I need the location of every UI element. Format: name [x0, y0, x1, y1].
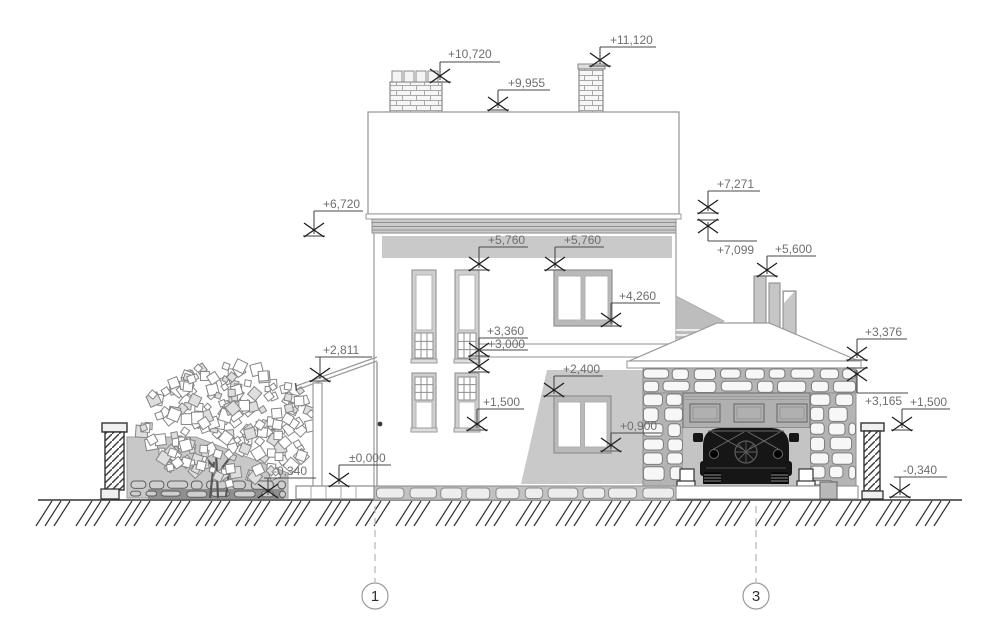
level-marker: +11,120 [589, 33, 656, 67]
stone [496, 488, 519, 499]
stone [441, 488, 462, 499]
stone [548, 488, 578, 498]
level-label: +10,720 [448, 47, 492, 61]
chimney-cap [416, 71, 426, 82]
leaf [213, 449, 223, 459]
hatch-line [934, 501, 950, 526]
hatch-line [436, 501, 452, 526]
window-pane [558, 276, 581, 320]
stone [278, 481, 286, 489]
level-label: +3,360 [487, 324, 524, 338]
post-cap [102, 423, 127, 432]
hatch-line [294, 501, 310, 526]
leaf [181, 414, 192, 425]
hatch-line [645, 501, 661, 526]
second-floor-right-window [554, 270, 612, 326]
stone [811, 381, 828, 391]
hatch-line [116, 501, 132, 526]
stone [843, 369, 856, 379]
stone [672, 369, 688, 379]
window-pane [585, 276, 608, 320]
hatch-line [605, 501, 621, 526]
post-base [101, 489, 119, 499]
car-headlight [774, 450, 783, 459]
stone [232, 481, 245, 489]
stone [644, 439, 664, 450]
leaf [225, 464, 235, 474]
stone [811, 407, 824, 420]
hatch-line [805, 501, 821, 526]
stone [665, 408, 683, 421]
garage-jamb-left [677, 469, 695, 486]
leaf [179, 439, 192, 452]
leaf [248, 387, 262, 401]
hatch-line [565, 501, 581, 526]
stone [820, 369, 838, 379]
level-label: +3,000 [488, 337, 525, 351]
stone [466, 488, 490, 499]
tall-window-upper [454, 270, 480, 363]
stone [721, 381, 752, 391]
tall-window-upper [411, 270, 437, 363]
window-lattice [415, 333, 433, 358]
hatch-line [325, 501, 341, 526]
hatch-line [134, 501, 150, 526]
stone-pier-base [820, 482, 837, 499]
hatch-line [76, 501, 92, 526]
level-label: +7,271 [717, 177, 754, 191]
hatch-line [276, 501, 292, 526]
stone [663, 381, 689, 391]
hatch-line [525, 501, 541, 526]
stone [694, 369, 715, 380]
level-label: +4,260 [619, 289, 656, 303]
stone [234, 491, 255, 497]
stone [410, 488, 436, 498]
window-sill [411, 428, 437, 432]
hatch-line [876, 501, 892, 526]
right-fence-post [861, 423, 884, 499]
hatch-line [765, 501, 781, 526]
hatch-line [94, 501, 110, 526]
hatch-line [854, 501, 870, 526]
hatch-line [205, 501, 221, 526]
stone [833, 381, 855, 392]
level-label: +2,400 [563, 362, 600, 376]
hatch-line [885, 501, 901, 526]
leaf [222, 362, 230, 370]
level-marker: +6,720 [303, 197, 363, 237]
hatch-line [156, 501, 172, 526]
hatch-line [716, 501, 732, 526]
hatch-line [516, 501, 532, 526]
leaf [209, 466, 216, 473]
hatch-line [85, 501, 101, 526]
leaf [196, 461, 206, 471]
porch-roof [296, 357, 377, 390]
leaf [255, 436, 265, 446]
stone [778, 381, 806, 392]
level-marker: +7,099 [697, 219, 757, 257]
leaf [284, 382, 292, 390]
hatch-line [454, 501, 470, 526]
stone [745, 369, 764, 379]
post-base [862, 491, 883, 499]
stone [131, 491, 141, 496]
stone [644, 453, 663, 464]
hatch-line [796, 501, 812, 526]
hatch-line [334, 501, 350, 526]
chimney-body [579, 69, 603, 115]
car-mirror [693, 433, 703, 442]
window-pane [416, 402, 432, 428]
hatch-line [45, 501, 61, 526]
level-marker: -0,340 [889, 463, 947, 498]
stone [849, 423, 856, 435]
hatch-line [374, 501, 390, 526]
car-grille-spokes [735, 441, 757, 463]
hatch-line [365, 501, 381, 526]
level-label: +11,120 [610, 33, 653, 47]
level-label: +0,900 [620, 419, 657, 433]
hatch-line [614, 501, 630, 526]
hatch-line [534, 501, 550, 526]
hatch-line [725, 501, 741, 526]
hatch-line [54, 501, 70, 526]
porch-post [313, 383, 322, 487]
stone [811, 394, 830, 405]
stone [644, 467, 665, 481]
axis-number-3: 3 [752, 588, 760, 605]
stone [829, 466, 842, 478]
hatch-line [196, 501, 212, 526]
level-label: +5,600 [775, 242, 812, 256]
car-mirror [789, 433, 799, 442]
stone [644, 394, 663, 406]
stone [668, 424, 680, 437]
garage-roof-fascia [627, 361, 861, 368]
axis-number-1: 1 [371, 588, 379, 605]
window-lattice [415, 377, 433, 400]
level-label: -0,340 [903, 463, 937, 477]
stone [830, 437, 851, 450]
hatch-line [845, 501, 861, 526]
leaf [244, 427, 257, 440]
hatch-line [165, 501, 181, 526]
stone [849, 466, 856, 479]
entry-steps [296, 486, 374, 499]
stone [769, 369, 785, 378]
hatch-line [734, 501, 750, 526]
stone [377, 488, 404, 498]
leaf [215, 392, 222, 399]
stone [643, 488, 674, 498]
hatch-line [285, 501, 301, 526]
level-label: +1,500 [910, 395, 947, 409]
hatch-line [596, 501, 612, 526]
stone [161, 491, 180, 496]
stone [811, 423, 825, 434]
hatch-line [894, 501, 910, 526]
stone [525, 488, 542, 498]
hatch-line [485, 501, 501, 526]
chimney-body [390, 82, 442, 113]
hatch-line [814, 501, 830, 526]
hatch-line [316, 501, 332, 526]
stone [811, 453, 829, 464]
stone [167, 481, 187, 488]
level-marker: +9,955 [487, 76, 550, 111]
hatch-line [396, 501, 412, 526]
first-floor-right-window [554, 396, 611, 453]
leaf [274, 431, 283, 440]
stone [836, 394, 853, 406]
stone [644, 369, 669, 378]
hatch-line [654, 501, 670, 526]
level-label: +5,760 [488, 233, 525, 247]
stone [811, 437, 825, 451]
post-body [864, 431, 880, 491]
leaf [228, 389, 235, 396]
hatch-line [254, 501, 270, 526]
window-pane [459, 402, 475, 428]
roof-fascia [366, 214, 681, 219]
hatch-line [445, 501, 461, 526]
stone [131, 481, 146, 488]
leaf [294, 396, 304, 406]
leaf [284, 403, 293, 412]
elevation-drawing-canvas: 1 3 +10,720+9,955+11,120+6,720+5,760+5,7… [0, 0, 999, 624]
window-pane [459, 275, 475, 330]
level-label: +5,760 [564, 233, 601, 247]
eave-cornice-band [372, 219, 676, 233]
leaf [200, 445, 208, 453]
leaf [267, 449, 275, 457]
hatch-line [245, 501, 261, 526]
post-cap [861, 423, 884, 431]
window-pane [558, 402, 581, 447]
hatch-line [774, 501, 790, 526]
stone [667, 453, 682, 464]
hatch-line [694, 501, 710, 526]
hatch-line [174, 501, 190, 526]
level-marker: +7,271 [697, 177, 760, 214]
stone [187, 491, 207, 497]
main-roof [368, 112, 679, 214]
level-label: -0,340 [273, 464, 307, 478]
leaf [272, 420, 282, 430]
hatch-line [214, 501, 230, 526]
stone [644, 381, 659, 391]
level-label: ±0,000 [349, 451, 386, 465]
header-panels [690, 404, 807, 422]
leaf [275, 453, 283, 461]
car [693, 428, 799, 484]
hatch-line [125, 501, 141, 526]
window-pane [416, 275, 432, 330]
hatch-line [916, 501, 932, 526]
hatch-line [476, 501, 492, 526]
leaf [244, 380, 251, 387]
stone [829, 423, 845, 435]
hatch-line [925, 501, 941, 526]
stone [694, 381, 716, 392]
hatch-line [756, 501, 772, 526]
door-knob [378, 422, 383, 427]
garage-door-header [683, 393, 810, 428]
house-plinth [374, 486, 676, 500]
porch-roof-edge [296, 383, 297, 391]
chimney-cap [392, 71, 402, 82]
level-label: +9,955 [508, 76, 545, 90]
hatch-line [36, 501, 52, 526]
level-label: +3,376 [865, 325, 902, 339]
stone [829, 407, 848, 421]
stone [609, 488, 637, 498]
leaf [271, 408, 282, 419]
stone [191, 481, 202, 489]
stone [280, 491, 286, 497]
main-house [296, 64, 682, 500]
stone [150, 481, 164, 489]
stone [583, 488, 605, 498]
hatch-line [676, 501, 692, 526]
leaf [284, 393, 292, 401]
hatch-line [236, 501, 252, 526]
stone [146, 491, 157, 496]
window-sill [454, 359, 480, 363]
level-marker: +10,720 [429, 47, 500, 83]
hatch-line [574, 501, 590, 526]
window-lattice [458, 377, 476, 400]
hatch-line [836, 501, 852, 526]
level-label: +7,099 [717, 243, 754, 257]
chimney-cap [404, 71, 414, 82]
level-label: +6,720 [323, 197, 360, 211]
leaf [171, 432, 178, 439]
stone [791, 369, 814, 378]
level-label: +3,165 [865, 394, 902, 408]
hatch-line [636, 501, 652, 526]
hatch-line [405, 501, 421, 526]
post-body [105, 432, 124, 490]
ground-hatch [36, 501, 950, 526]
leaf [225, 479, 234, 488]
stone [666, 394, 682, 405]
tall-window-lower [411, 373, 437, 432]
stone [721, 369, 741, 378]
level-marker: +3,376 [846, 325, 907, 361]
window-sill [411, 359, 437, 363]
hatch-line [494, 501, 510, 526]
hatch-line [556, 501, 572, 526]
leaf [258, 371, 269, 382]
left-chimney [390, 71, 442, 113]
side-elevation-drawing: 1 3 +10,720+9,955+11,120+6,720+5,760+5,7… [0, 0, 999, 624]
car-headlight [710, 450, 719, 459]
stone [668, 439, 683, 451]
stone [758, 381, 774, 392]
hatch-line [685, 501, 701, 526]
leaf [259, 406, 267, 414]
right-chimney [578, 64, 605, 115]
hatch-line [414, 501, 430, 526]
left-fence-post [101, 423, 127, 499]
level-label: +1,500 [483, 395, 520, 409]
garage-jamb-right [797, 469, 815, 486]
ground [36, 500, 962, 526]
level-label: +2,811 [323, 343, 359, 357]
hatch-line [356, 501, 372, 526]
stone [832, 453, 853, 464]
leaf [181, 427, 190, 436]
axis-grid: 1 3 [362, 506, 769, 609]
level-marker: +5,600 [756, 242, 816, 277]
